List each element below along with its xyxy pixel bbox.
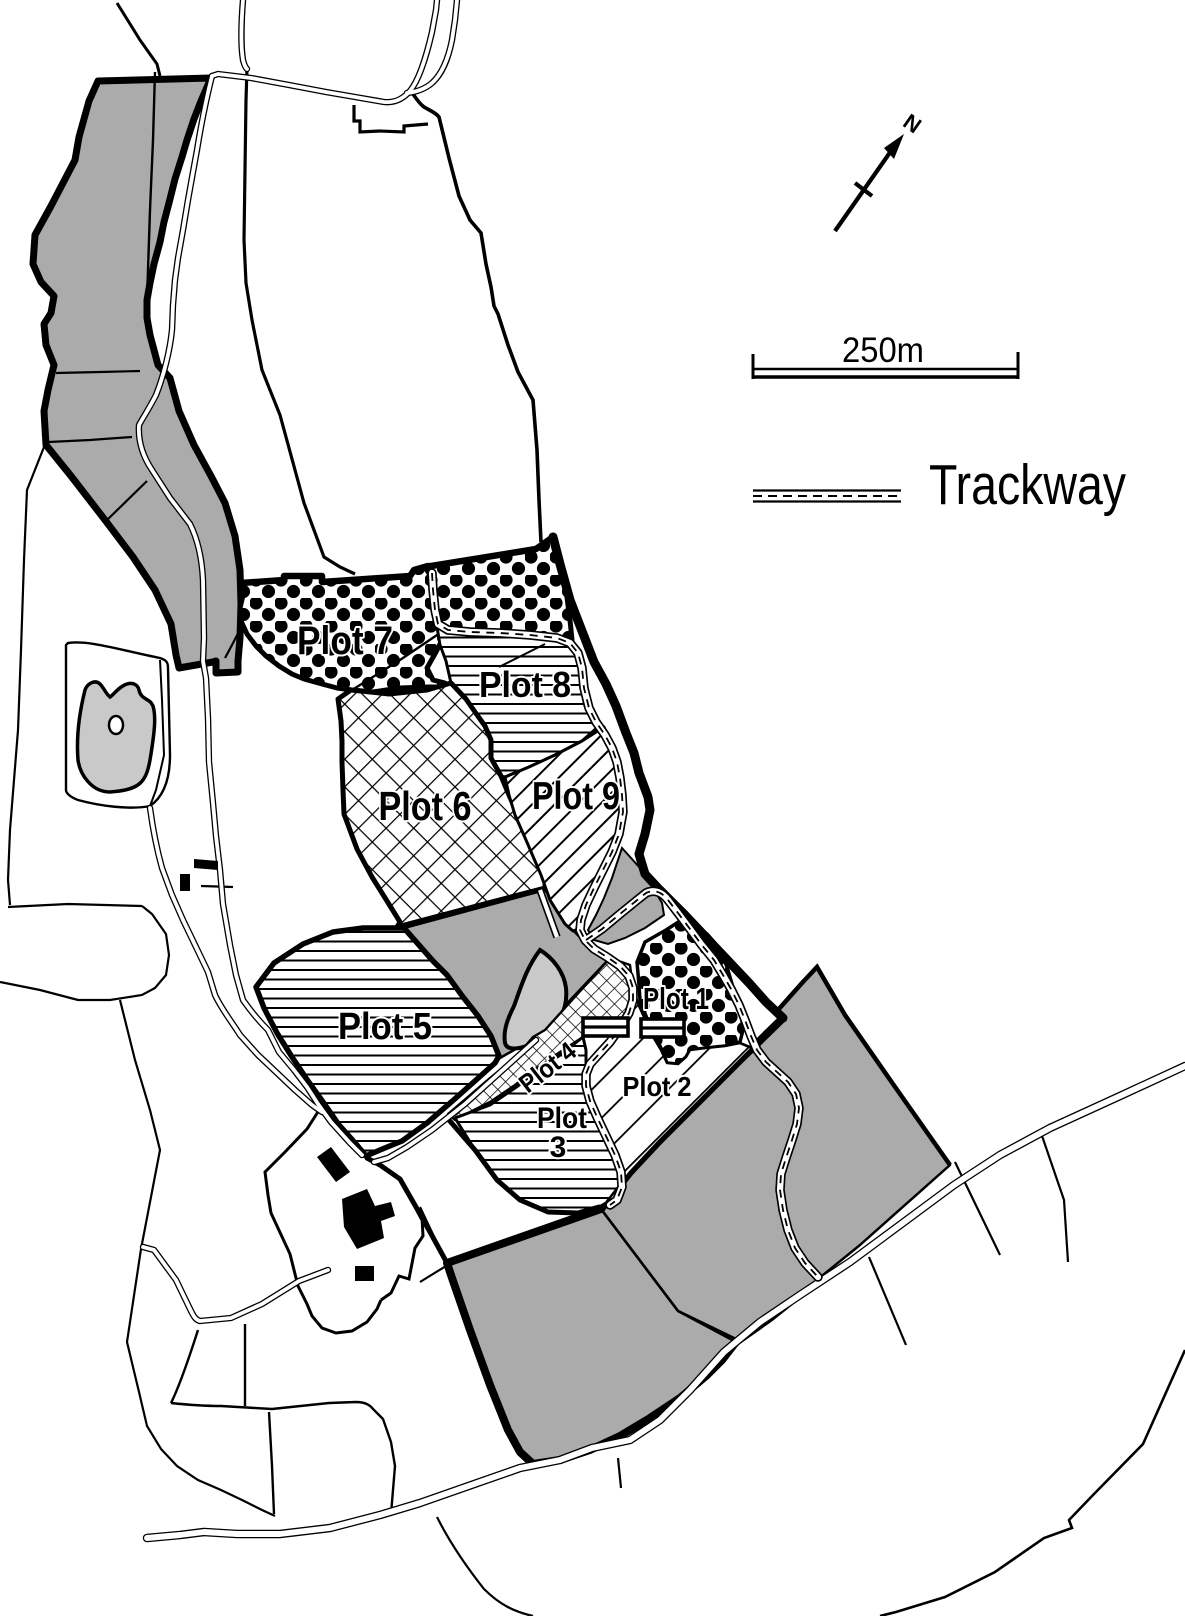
svg-text:Plot 9: Plot 9 xyxy=(532,775,620,818)
svg-text:3: 3 xyxy=(550,1131,567,1164)
svg-text:Plot 2: Plot 2 xyxy=(623,1071,692,1102)
svg-text:Trackway: Trackway xyxy=(929,453,1126,517)
svg-text:Plot 5: Plot 5 xyxy=(338,1006,432,1048)
svg-text:Plot 8: Plot 8 xyxy=(479,664,571,705)
svg-text:Plot 1: Plot 1 xyxy=(643,981,709,1016)
svg-text:Plot 6: Plot 6 xyxy=(379,783,472,829)
svg-text:Plot 7: Plot 7 xyxy=(297,619,393,663)
svg-text:250m: 250m xyxy=(842,331,924,370)
